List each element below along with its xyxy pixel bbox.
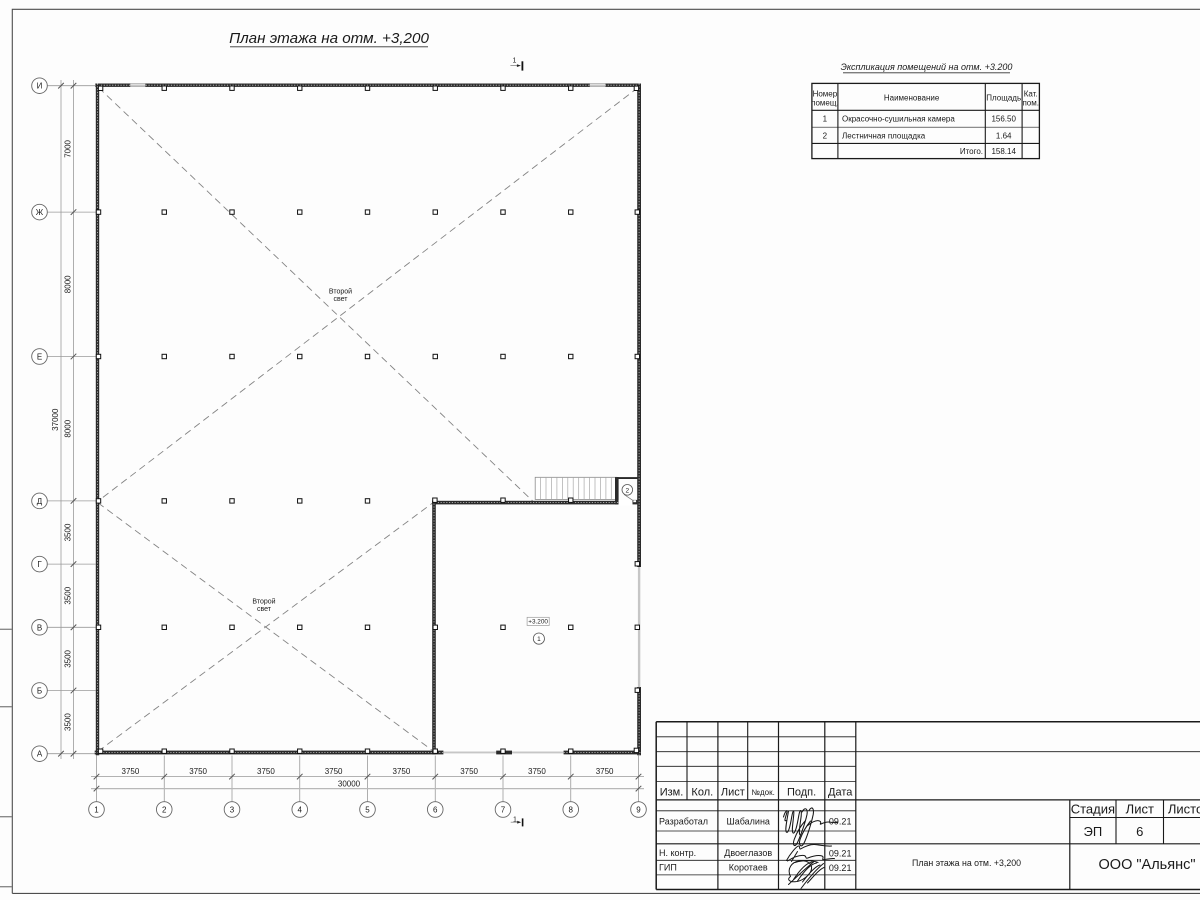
svg-text:1: 1: [94, 806, 99, 815]
svg-text:7000: 7000: [64, 139, 73, 157]
svg-text:6: 6: [433, 806, 438, 815]
svg-text:2: 2: [162, 806, 167, 815]
svg-text:1.64: 1.64: [996, 131, 1012, 140]
svg-text:Б: Б: [37, 687, 42, 696]
svg-text:7: 7: [501, 806, 506, 815]
svg-text:3500: 3500: [64, 649, 73, 667]
svg-text:свет: свет: [333, 296, 348, 303]
svg-text:Итого.: Итого.: [960, 147, 983, 156]
svg-text:ООО "Альянс": ООО "Альянс": [1099, 857, 1196, 873]
svg-text:Двоеглазов: Двоеглазов: [724, 848, 772, 858]
svg-text:3750: 3750: [393, 767, 411, 776]
svg-text:3750: 3750: [596, 767, 614, 776]
svg-text:6: 6: [1136, 824, 1143, 839]
svg-text:пом.: пом.: [1022, 99, 1039, 108]
svg-text:3750: 3750: [460, 767, 478, 776]
svg-text:8: 8: [569, 806, 574, 815]
svg-text:Второй: Второй: [329, 288, 352, 296]
svg-text:3750: 3750: [325, 767, 343, 776]
svg-text:9: 9: [636, 806, 641, 815]
svg-text:Кат.: Кат.: [1024, 90, 1038, 99]
svg-text:В: В: [37, 623, 42, 632]
svg-text:3750: 3750: [528, 767, 546, 776]
svg-text:4: 4: [298, 806, 303, 815]
svg-text:3750: 3750: [189, 767, 207, 776]
svg-text:1: 1: [513, 57, 517, 64]
svg-text:1: 1: [537, 636, 541, 643]
svg-text:План этажа на отм. +3,200: План этажа на отм. +3,200: [229, 30, 429, 47]
svg-text:№док.: №док.: [751, 788, 774, 797]
svg-text:8000: 8000: [64, 419, 73, 437]
svg-text:Окрасочно-сушильная камера: Окрасочно-сушильная камера: [842, 115, 955, 124]
svg-text:Е: Е: [37, 353, 42, 362]
svg-text:8000: 8000: [64, 275, 73, 293]
svg-text:Площадь: Площадь: [986, 93, 1021, 102]
svg-text:09.21: 09.21: [829, 817, 852, 827]
svg-text:1: 1: [823, 115, 828, 124]
svg-text:Подп.: Подп.: [787, 787, 816, 799]
svg-text:+3.200: +3.200: [528, 619, 548, 626]
svg-text:3500: 3500: [64, 523, 73, 541]
svg-text:3750: 3750: [257, 767, 275, 776]
svg-text:Ж: Ж: [36, 208, 44, 217]
svg-text:Кол.: Кол.: [691, 787, 713, 799]
svg-text:Разработал: Разработал: [659, 817, 708, 827]
svg-text:Второй: Второй: [252, 598, 275, 606]
svg-text:Лестничная площадка: Лестничная площадка: [842, 131, 926, 140]
svg-text:Лист: Лист: [1126, 802, 1154, 817]
svg-text:Коротаев: Коротаев: [729, 863, 768, 873]
svg-text:А: А: [37, 750, 43, 759]
svg-text:Д: Д: [37, 497, 43, 506]
svg-text:30000: 30000: [338, 779, 361, 788]
svg-text:2: 2: [823, 131, 828, 140]
svg-text:Лист: Лист: [721, 787, 745, 799]
svg-text:Стадия: Стадия: [1071, 802, 1115, 817]
svg-text:156.50: 156.50: [991, 115, 1016, 124]
svg-text:2: 2: [625, 487, 629, 494]
svg-text:помещ.: помещ.: [811, 99, 839, 108]
svg-text:свет: свет: [257, 606, 272, 613]
svg-text:Шабалина: Шабалина: [726, 817, 769, 827]
svg-text:37000: 37000: [51, 408, 60, 431]
svg-text:Н. контр.: Н. контр.: [659, 848, 696, 858]
svg-text:Г: Г: [37, 560, 42, 569]
svg-text:09.21: 09.21: [829, 849, 852, 859]
svg-text:3750: 3750: [122, 767, 140, 776]
svg-text:Номер: Номер: [813, 90, 838, 99]
svg-text:3: 3: [230, 806, 235, 815]
svg-text:ГИП: ГИП: [659, 863, 677, 873]
svg-text:Дата: Дата: [828, 787, 853, 799]
svg-text:3500: 3500: [64, 713, 73, 731]
svg-text:План этажа на отм. +3,200: План этажа на отм. +3,200: [912, 858, 1021, 868]
svg-text:Листов: Листов: [1168, 802, 1200, 817]
svg-text:Экспликация помещений на отм.: Экспликация помещений на отм. +3.200: [841, 62, 1013, 72]
svg-text:3500: 3500: [64, 586, 73, 604]
svg-text:И: И: [37, 82, 43, 91]
svg-text:09.21: 09.21: [829, 863, 852, 873]
svg-text:Изм.: Изм.: [660, 787, 684, 799]
svg-text:5: 5: [365, 806, 370, 815]
svg-text:Наименование: Наименование: [884, 93, 940, 102]
svg-text:158.14: 158.14: [991, 147, 1016, 156]
svg-text:ЭП: ЭП: [1084, 824, 1103, 839]
